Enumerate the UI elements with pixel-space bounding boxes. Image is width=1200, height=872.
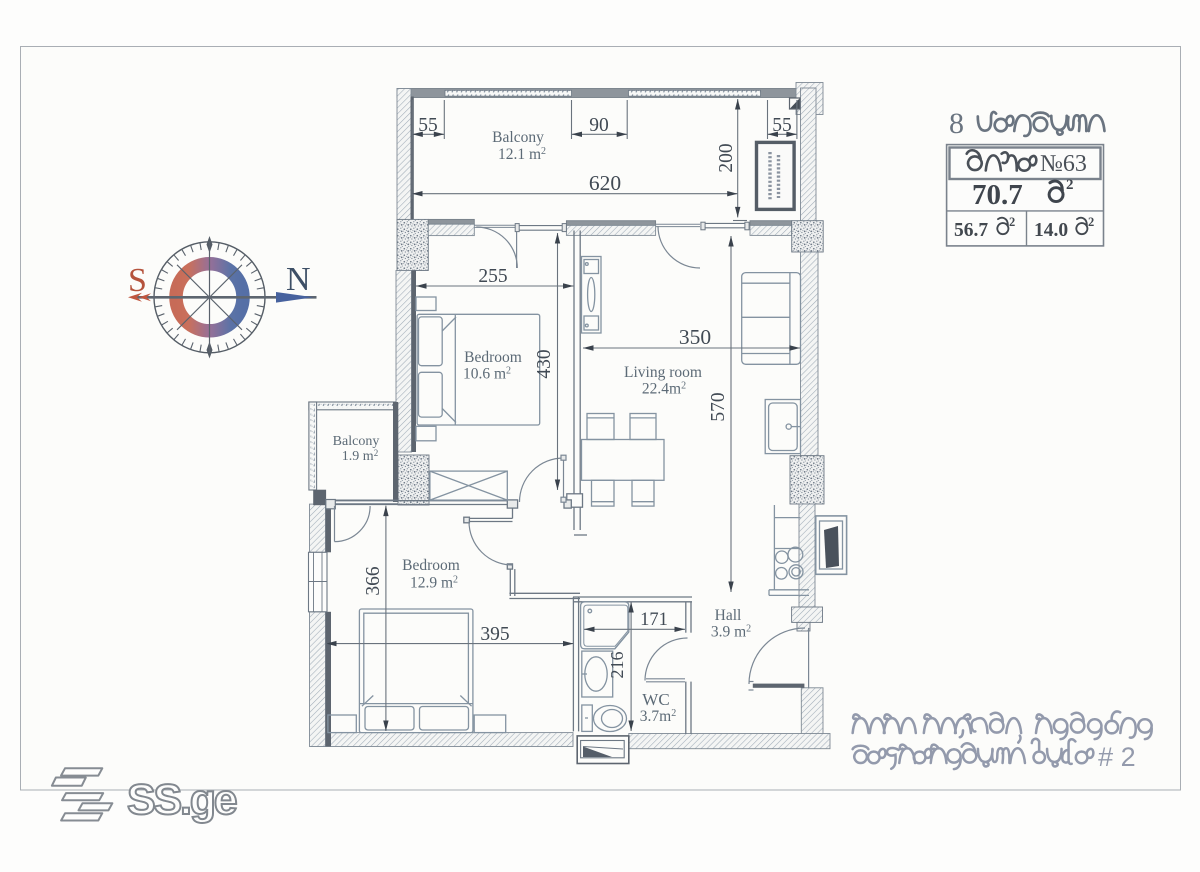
- svg-text:620: 620: [589, 171, 621, 195]
- svg-text:3.9 m2: 3.9 m2: [711, 624, 751, 641]
- svg-text:430: 430: [534, 349, 555, 378]
- svg-text:171: 171: [640, 610, 668, 630]
- svg-text:# 2: # 2: [1098, 742, 1136, 772]
- svg-text:395: 395: [480, 624, 509, 645]
- svg-text:55: 55: [772, 115, 792, 136]
- svg-text:N: N: [286, 261, 311, 298]
- svg-text:Balcony: Balcony: [333, 434, 380, 449]
- svg-text:Bedroom: Bedroom: [402, 557, 460, 574]
- svg-text:2: 2: [1066, 177, 1074, 193]
- svg-text:Balcony: Balcony: [492, 129, 544, 146]
- svg-text:70.7: 70.7: [972, 179, 1023, 211]
- svg-text:366: 366: [363, 566, 384, 596]
- svg-text:№63: №63: [1040, 151, 1087, 177]
- svg-text:8: 8: [949, 107, 964, 140]
- svg-text:22.4m2: 22.4m2: [642, 381, 686, 398]
- svg-text:350: 350: [679, 325, 711, 349]
- svg-text:56.7: 56.7: [954, 220, 988, 241]
- svg-text:WC: WC: [642, 690, 669, 709]
- svg-text:200: 200: [716, 143, 737, 172]
- svg-text:2: 2: [1088, 215, 1094, 229]
- svg-text:255: 255: [478, 266, 507, 287]
- svg-text:570: 570: [708, 392, 729, 421]
- svg-text:Hall: Hall: [715, 607, 742, 624]
- svg-text:Bedroom: Bedroom: [464, 349, 522, 366]
- svg-text:1.9 m2: 1.9 m2: [342, 448, 378, 464]
- svg-text:216: 216: [607, 652, 627, 679]
- svg-text:12.9 m2: 12.9 m2: [410, 575, 458, 592]
- svg-text:14.0: 14.0: [1034, 220, 1068, 241]
- svg-text:Living room: Living room: [624, 364, 702, 381]
- svg-text:90: 90: [589, 115, 609, 136]
- svg-text:10.6 m2: 10.6 m2: [463, 366, 511, 383]
- svg-text:3.7m2: 3.7m2: [640, 708, 676, 725]
- svg-text:S: S: [128, 262, 147, 299]
- svg-text:2: 2: [1009, 215, 1015, 229]
- svg-text:SS.ge: SS.ge: [127, 776, 237, 824]
- svg-text:55: 55: [418, 115, 438, 136]
- svg-text:12.1 m2: 12.1 m2: [498, 146, 546, 163]
